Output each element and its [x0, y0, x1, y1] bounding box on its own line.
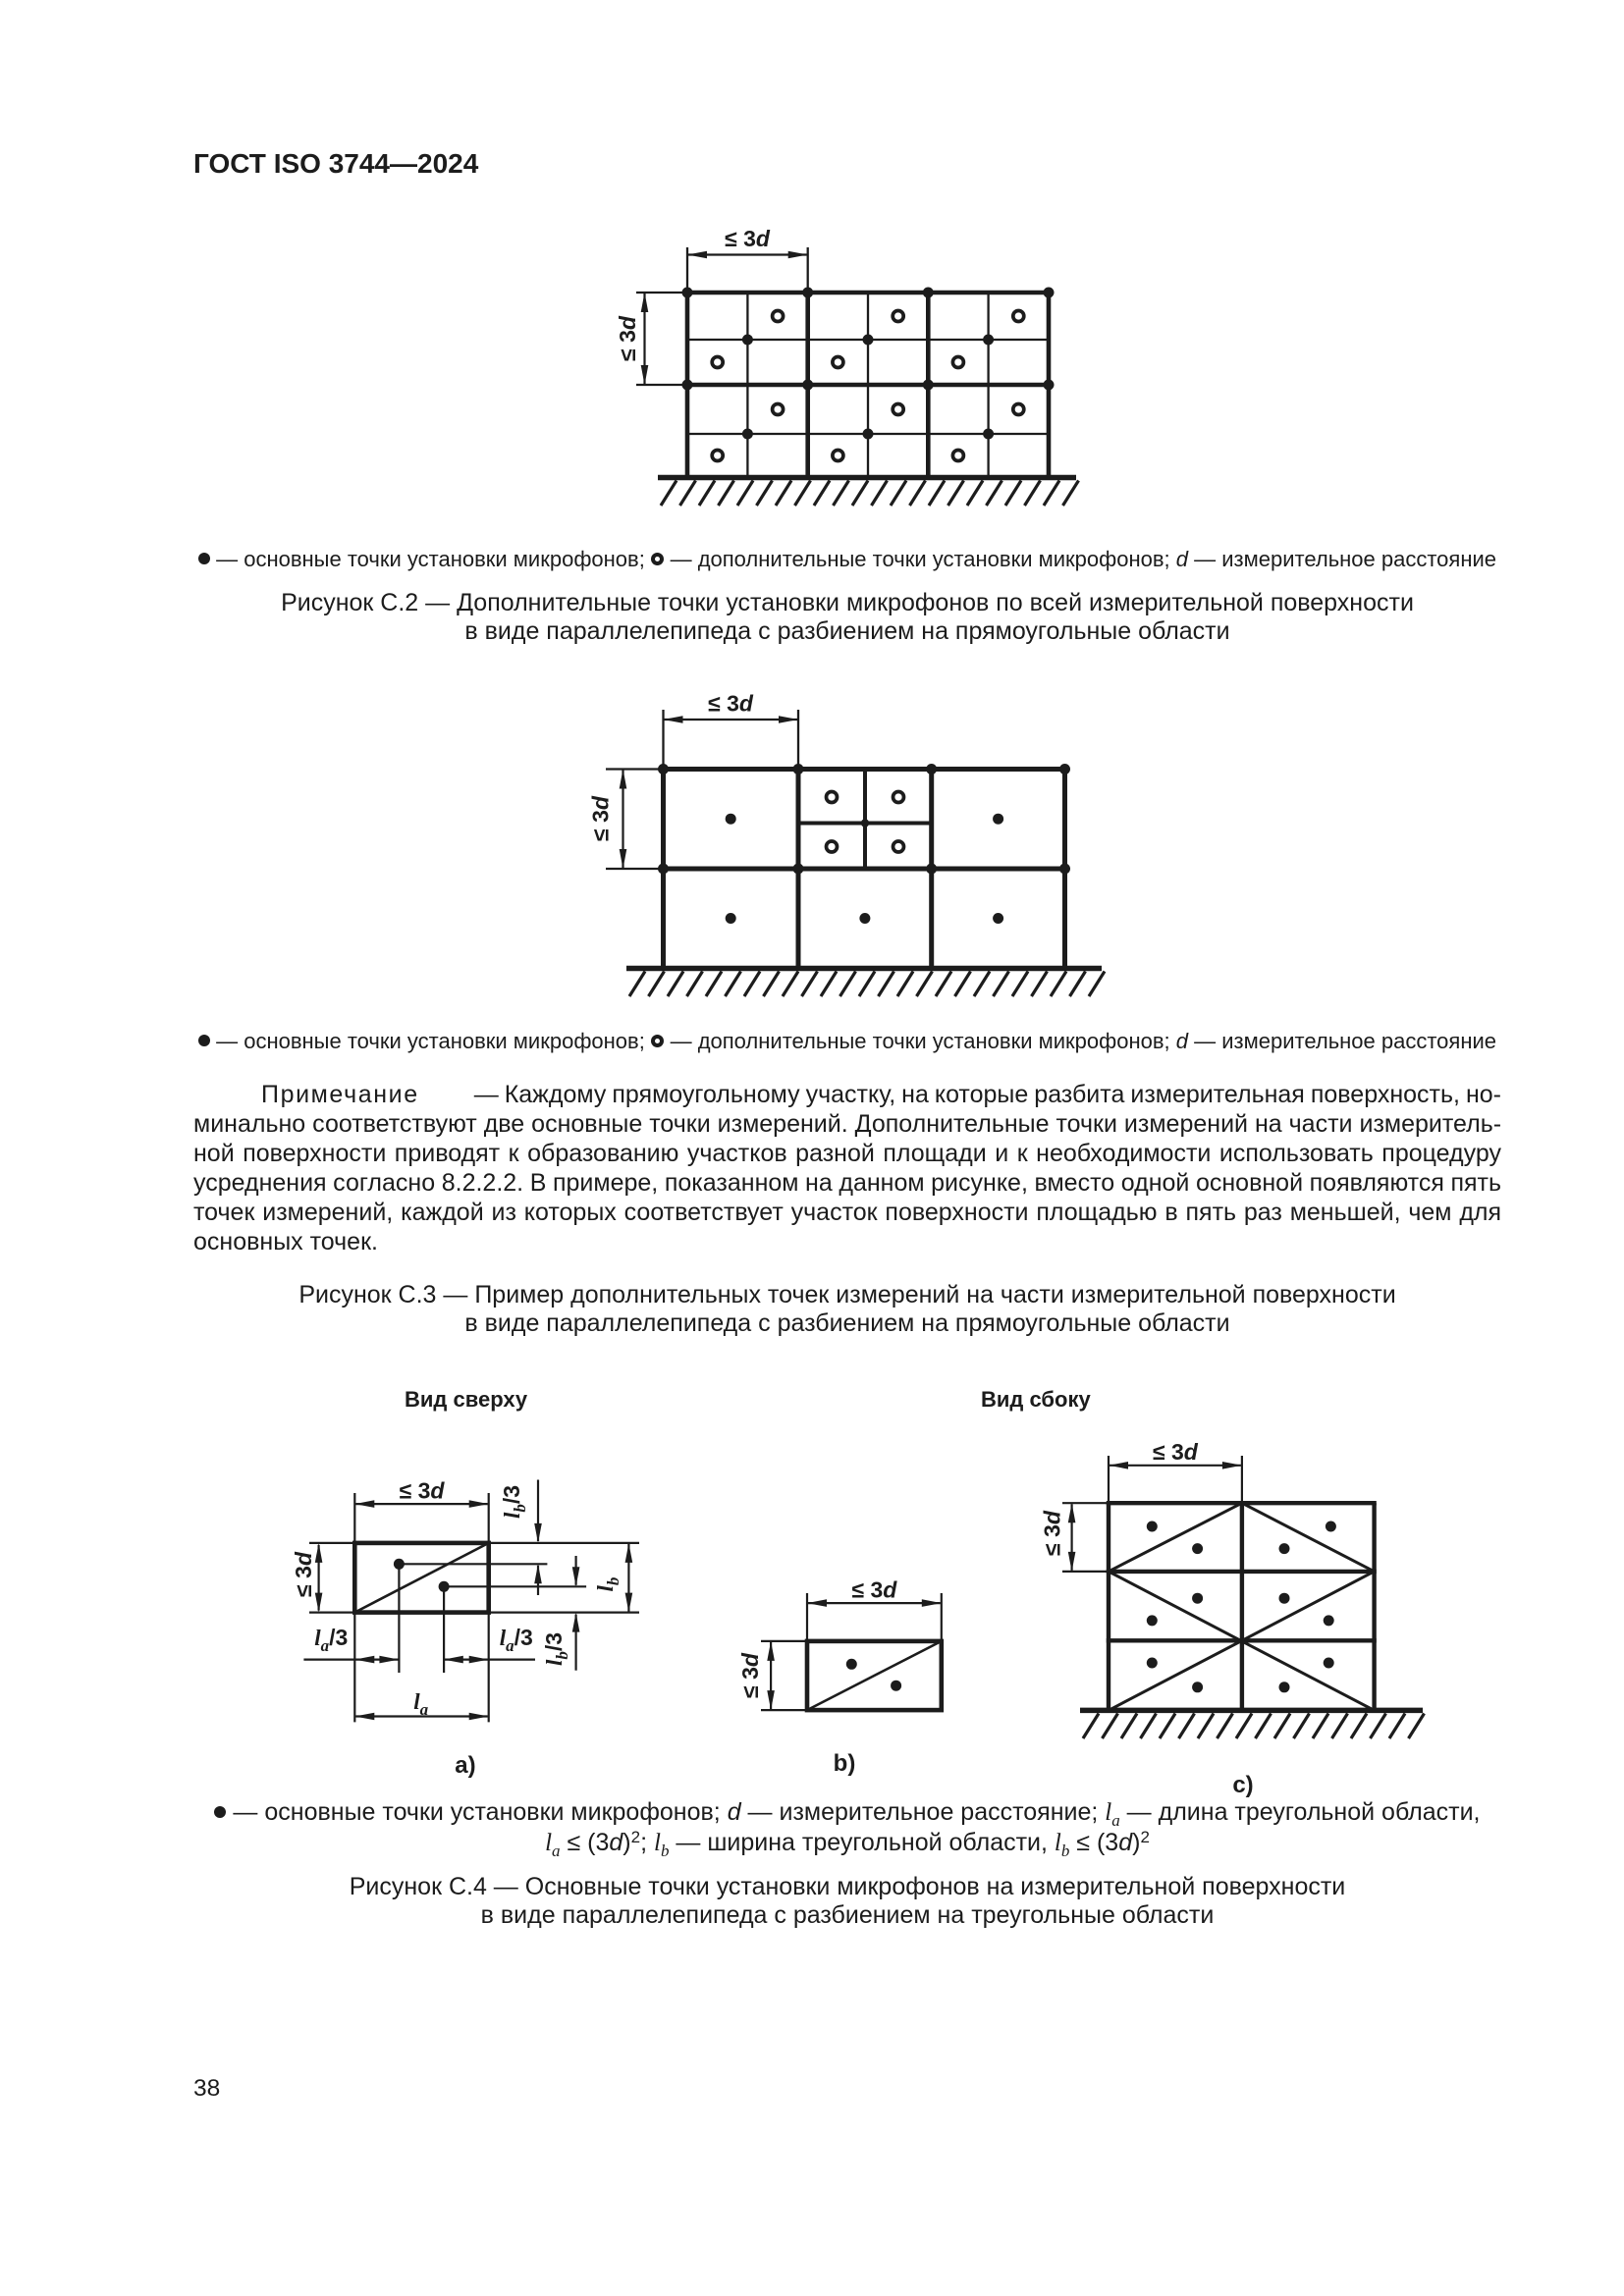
svg-text:≤ 3d: ≤ 3d [615, 315, 640, 361]
svg-text:≤ 3d: ≤ 3d [725, 226, 771, 251]
svg-text:la/3: la/3 [500, 1625, 533, 1655]
svg-text:la: la [413, 1689, 428, 1719]
svg-text:la/3: la/3 [314, 1625, 348, 1655]
svg-text:≤ 3d: ≤ 3d [1153, 1439, 1199, 1465]
svg-text:lb: lb [593, 1577, 623, 1592]
svg-text:≤ 3d: ≤ 3d [291, 1551, 316, 1597]
svg-text:lb/3: lb/3 [541, 1632, 571, 1666]
svg-text:lb/3: lb/3 [499, 1485, 529, 1519]
svg-text:≤ 3d: ≤ 3d [708, 691, 754, 717]
svg-text:c): c) [1232, 1772, 1253, 1798]
svg-text:≤ 3d: ≤ 3d [400, 1478, 446, 1504]
svg-text:a): a) [455, 1752, 475, 1779]
svg-text:≤ 3d: ≤ 3d [737, 1652, 763, 1698]
svg-text:≤ 3d: ≤ 3d [588, 795, 614, 841]
svg-text:b): b) [834, 1750, 856, 1777]
svg-text:≤ 3d: ≤ 3d [851, 1577, 897, 1603]
svg-text:≤ 3d: ≤ 3d [1040, 1510, 1065, 1556]
